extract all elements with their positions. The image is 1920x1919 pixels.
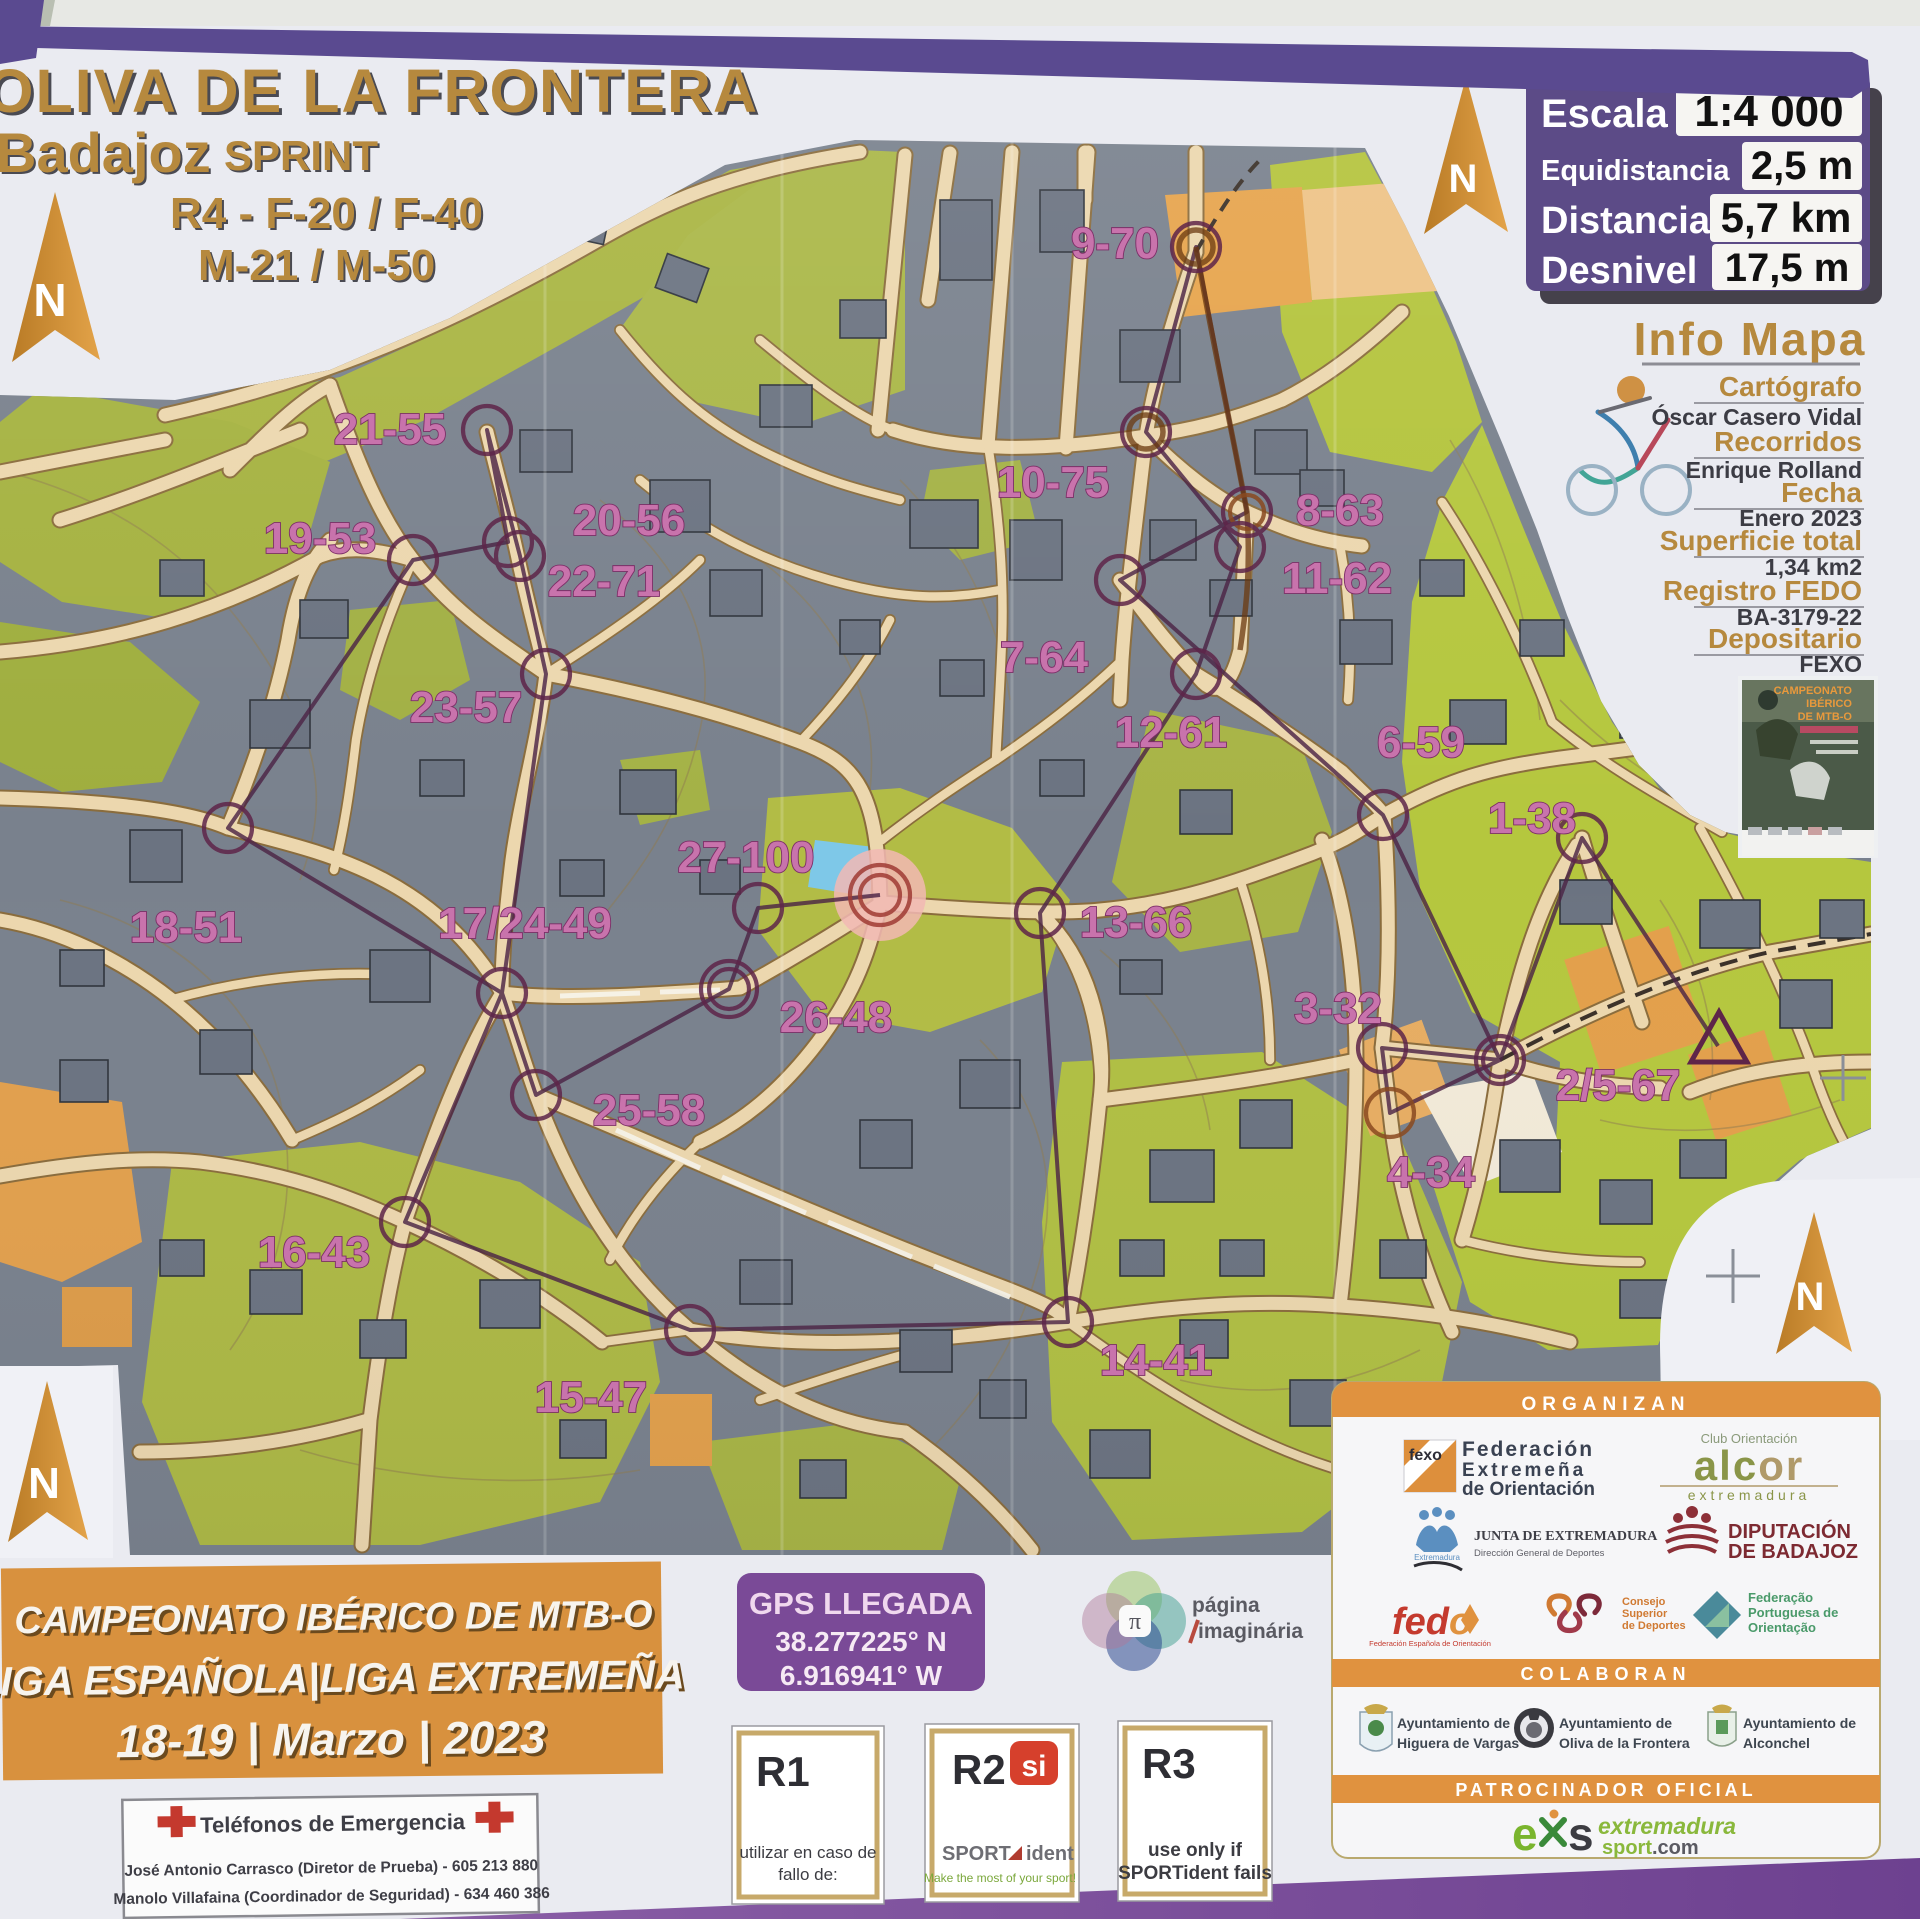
svg-text:Portuguesa de: Portuguesa de xyxy=(1748,1605,1838,1620)
svg-text:18-19 | Marzo | 2023: 18-19 | Marzo | 2023 xyxy=(116,1711,547,1768)
svg-text:CAMPEONATO IBÉRICO DE MTB-O: CAMPEONATO IBÉRICO DE MTB-O xyxy=(14,1592,653,1643)
svg-text:N: N xyxy=(33,274,66,326)
svg-text:DE BADAJOZ: DE BADAJOZ xyxy=(1728,1541,1858,1563)
svg-text:R4 - F-20 / F-40: R4 - F-20 / F-40 xyxy=(170,189,483,238)
svg-text:2/5-67: 2/5-67 xyxy=(1556,1061,1681,1110)
svg-text:38.277225° N: 38.277225° N xyxy=(775,1626,947,1657)
svg-text:10-75: 10-75 xyxy=(997,458,1110,507)
svg-text:COLABORAN: COLABORAN xyxy=(1521,1664,1692,1684)
svg-text:Distancia: Distancia xyxy=(1541,200,1711,242)
svg-text:LIGA ESPAÑOLA|LIGA EXTREMEÑA: LIGA ESPAÑOLA|LIGA EXTREMEÑA xyxy=(0,1651,685,1704)
svg-text:alcor: alcor xyxy=(1694,1442,1804,1489)
svg-text:17,5 m: 17,5 m xyxy=(1725,246,1850,290)
svg-text:25-58: 25-58 xyxy=(593,1086,706,1135)
svg-text:utilizar en caso de: utilizar en caso de xyxy=(739,1843,876,1862)
svg-text:de Orientación: de Orientación xyxy=(1462,1479,1595,1500)
svg-text:Info Mapa: Info Mapa xyxy=(1634,313,1867,365)
svg-text:JUNTA DE EXTREMADURA: JUNTA DE EXTREMADURA xyxy=(1474,1529,1658,1544)
svg-text:Make the most of your sport!: Make the most of your sport! xyxy=(924,1871,1076,1885)
svg-text:R1: R1 xyxy=(756,1748,810,1795)
svg-text:Dirección General de Deportes: Dirección General de Deportes xyxy=(1474,1548,1605,1559)
svg-text:5,7 km: 5,7 km xyxy=(1721,194,1852,241)
svg-text:Oliva de la Frontera: Oliva de la Frontera xyxy=(1559,1735,1690,1751)
svg-text:R3: R3 xyxy=(1142,1740,1196,1787)
svg-text:fallo de:: fallo de: xyxy=(778,1865,838,1884)
svg-text:Superficie total: Superficie total xyxy=(1660,525,1862,556)
svg-text:ORGANIZAN: ORGANIZAN xyxy=(1521,1394,1690,1415)
svg-text:Federação: Federação xyxy=(1748,1590,1813,1605)
svg-text:20-56: 20-56 xyxy=(573,496,686,545)
svg-text:Desnivel: Desnivel xyxy=(1541,250,1697,292)
svg-text:PATROCINADOR OFICIAL: PATROCINADOR OFICIAL xyxy=(1455,1780,1756,1800)
svg-text:Higuera de Vargas: Higuera de Vargas xyxy=(1397,1735,1519,1751)
svg-text:M-21 / M-50: M-21 / M-50 xyxy=(198,241,435,290)
svg-text:GPS LLEGADA: GPS LLEGADA xyxy=(749,1586,973,1621)
svg-text:Extremadura: Extremadura xyxy=(1414,1553,1460,1562)
svg-text:SPORT: SPORT xyxy=(942,1843,1011,1865)
svg-text:Consejo: Consejo xyxy=(1622,1596,1666,1608)
svg-text:17/24-49: 17/24-49 xyxy=(438,899,612,948)
svg-text:Ayuntamiento de: Ayuntamiento de xyxy=(1743,1715,1856,1731)
svg-text:18-51: 18-51 xyxy=(130,903,243,952)
svg-text:Escala: Escala xyxy=(1541,92,1669,136)
svg-text:Recorridos: Recorridos xyxy=(1714,426,1862,457)
svg-text:R2: R2 xyxy=(952,1746,1006,1793)
svg-text:IBÉRICO: IBÉRICO xyxy=(1806,697,1852,710)
svg-text:6-59: 6-59 xyxy=(1377,718,1465,767)
svg-text:16-43: 16-43 xyxy=(258,1228,371,1277)
svg-text:SPRINT: SPRINT xyxy=(224,132,378,179)
svg-text:sport.com: sport.com xyxy=(1602,1837,1699,1859)
svg-text:23-57: 23-57 xyxy=(410,683,523,732)
svg-text:Teléfonos de Emergencia: Teléfonos de Emergencia xyxy=(200,1809,466,1838)
svg-text:Cartógrafo: Cartógrafo xyxy=(1719,371,1862,402)
svg-text:si: si xyxy=(1021,1750,1046,1783)
svg-text:Fecha: Fecha xyxy=(1781,477,1862,508)
svg-text:s: s xyxy=(1568,1808,1594,1860)
svg-text:Extremeña: Extremeña xyxy=(1462,1460,1586,1481)
svg-text:SPORTident fails: SPORTident fails xyxy=(1118,1863,1272,1884)
svg-text:N: N xyxy=(1449,157,1478,201)
svg-text:19-53: 19-53 xyxy=(264,514,377,563)
svg-text:9-70: 9-70 xyxy=(1071,219,1159,268)
svg-text:Orientação: Orientação xyxy=(1748,1620,1816,1635)
svg-text:N: N xyxy=(28,1459,60,1508)
svg-text:12-61: 12-61 xyxy=(1115,708,1228,757)
svg-text:14-41: 14-41 xyxy=(1100,1336,1213,1385)
svg-text:Badajoz: Badajoz xyxy=(0,121,211,184)
svg-text:4-34: 4-34 xyxy=(1387,1148,1476,1197)
svg-text:Registro FEDO: Registro FEDO xyxy=(1663,575,1862,606)
svg-text:e: e xyxy=(1512,1808,1538,1860)
svg-text:2,5 m: 2,5 m xyxy=(1751,144,1853,188)
svg-text:22-71: 22-71 xyxy=(548,557,661,606)
svg-text:21-55: 21-55 xyxy=(334,405,447,454)
svg-text:de Deportes: de Deportes xyxy=(1622,1620,1686,1632)
svg-text:use only if: use only if xyxy=(1148,1840,1243,1861)
svg-text:Depositario: Depositario xyxy=(1708,623,1862,654)
svg-text:Federación Española de Orienta: Federación Española de Orientación xyxy=(1369,1639,1491,1648)
svg-text:N: N xyxy=(1796,1275,1825,1319)
svg-text:15-47: 15-47 xyxy=(535,1373,648,1422)
svg-text:extremadura: extremadura xyxy=(1598,1813,1736,1839)
svg-text:OLIVA DE LA FRONTERA: OLIVA DE LA FRONTERA xyxy=(0,57,759,125)
svg-text:DIPUTACIÓN: DIPUTACIÓN xyxy=(1728,1519,1851,1543)
svg-text:11-62: 11-62 xyxy=(1282,554,1392,603)
svg-text:Federación: Federación xyxy=(1462,1438,1594,1461)
svg-text:7-64: 7-64 xyxy=(1000,633,1089,682)
svg-text:Equidistancia: Equidistancia xyxy=(1541,155,1730,187)
svg-text:ident: ident xyxy=(1026,1843,1074,1865)
svg-text:DE MTB-O: DE MTB-O xyxy=(1798,711,1853,723)
svg-text:26-48: 26-48 xyxy=(780,993,893,1042)
svg-text:fexo: fexo xyxy=(1409,1447,1442,1464)
svg-text:π: π xyxy=(1129,1609,1141,1635)
svg-text:6.916941° W: 6.916941° W xyxy=(780,1660,943,1691)
svg-text:Ayuntamiento de: Ayuntamiento de xyxy=(1559,1715,1672,1731)
svg-text:imaginária: imaginária xyxy=(1198,1620,1303,1643)
svg-text:FEXO: FEXO xyxy=(1799,651,1862,677)
svg-text:Superior: Superior xyxy=(1622,1608,1668,1620)
svg-text:Alconchel: Alconchel xyxy=(1743,1735,1810,1751)
svg-text:extremadura: extremadura xyxy=(1688,1487,1811,1503)
svg-text:página: página xyxy=(1192,1594,1260,1617)
svg-text:8-63: 8-63 xyxy=(1296,486,1384,535)
svg-text:fedo: fedo xyxy=(1392,1601,1472,1643)
svg-text:1-38: 1-38 xyxy=(1488,794,1576,843)
svg-text:13-66: 13-66 xyxy=(1080,898,1193,947)
svg-text:3-32: 3-32 xyxy=(1294,984,1382,1033)
svg-text:CAMPEONATO: CAMPEONATO xyxy=(1774,685,1853,697)
svg-text:27-100: 27-100 xyxy=(677,833,814,882)
svg-text:Ayuntamiento de: Ayuntamiento de xyxy=(1397,1715,1510,1731)
